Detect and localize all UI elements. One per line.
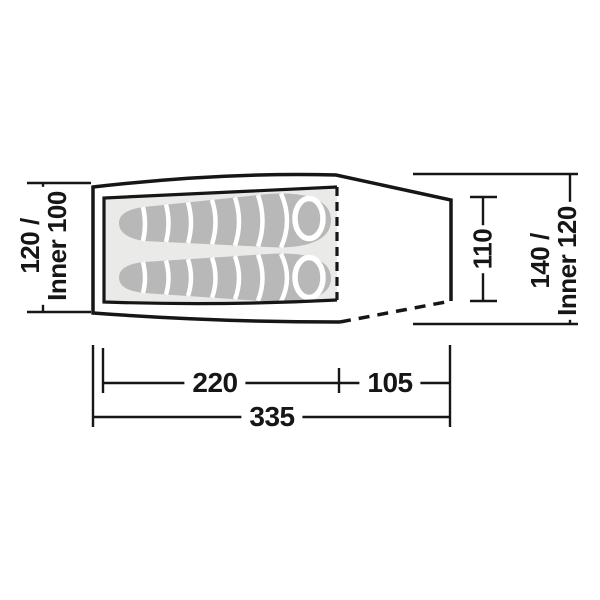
dim-label-inner-length: 220 (184, 369, 245, 397)
dim-label-line: 105 (367, 369, 412, 397)
tent-dimensions-diagram: 120 / Inner 100 110 140 / Inner 120 220 … (0, 0, 600, 600)
dim-label-line: 120 / (17, 191, 44, 301)
dim-label-line: 110 (470, 229, 497, 269)
dim-label-line: Inner 100 (44, 191, 71, 301)
dim-label-line: 140 / (527, 206, 554, 316)
dim-label-front-width: 120 / Inner 100 (17, 187, 71, 305)
dim-label-porch-length: 105 (359, 369, 420, 397)
dim-label-rear-width: 140 / Inner 120 (527, 202, 581, 320)
dim-label-total-length: 335 (241, 403, 302, 431)
dim-label-line: 220 (192, 369, 237, 397)
dim-label-door-height: 110 (470, 225, 497, 273)
dim-label-line: 335 (249, 403, 294, 431)
dim-label-line: Inner 120 (554, 206, 581, 316)
tent-diagram-graphics (0, 0, 600, 600)
